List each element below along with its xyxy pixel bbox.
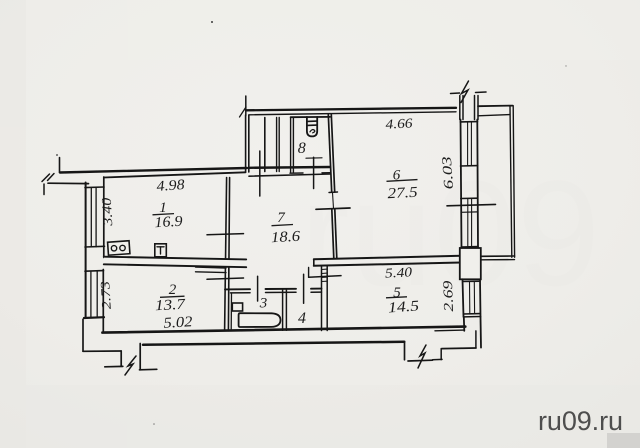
svg-text:5: 5 <box>393 285 401 301</box>
svg-text:4.98: 4.98 <box>156 177 186 195</box>
svg-text:13.7: 13.7 <box>155 297 188 315</box>
svg-text:2.73: 2.73 <box>97 280 113 309</box>
svg-text:18.6: 18.6 <box>271 229 301 247</box>
svg-text:3: 3 <box>259 296 268 312</box>
svg-text:4.66: 4.66 <box>385 115 413 131</box>
svg-text:27.5: 27.5 <box>387 185 418 203</box>
svg-text:4: 4 <box>298 310 306 327</box>
svg-text:8: 8 <box>298 140 306 157</box>
svg-text:5.02: 5.02 <box>163 314 193 332</box>
svg-text:2.69: 2.69 <box>440 280 456 312</box>
svg-text:3.40: 3.40 <box>99 197 116 227</box>
svg-text:2: 2 <box>169 282 177 298</box>
svg-text:ru09.ru: ru09.ru <box>538 406 623 436</box>
svg-text:14.5: 14.5 <box>388 298 421 316</box>
svg-text:5.40: 5.40 <box>385 264 413 280</box>
svg-text:16.9: 16.9 <box>154 214 183 231</box>
svg-text:6.03: 6.03 <box>439 155 456 189</box>
